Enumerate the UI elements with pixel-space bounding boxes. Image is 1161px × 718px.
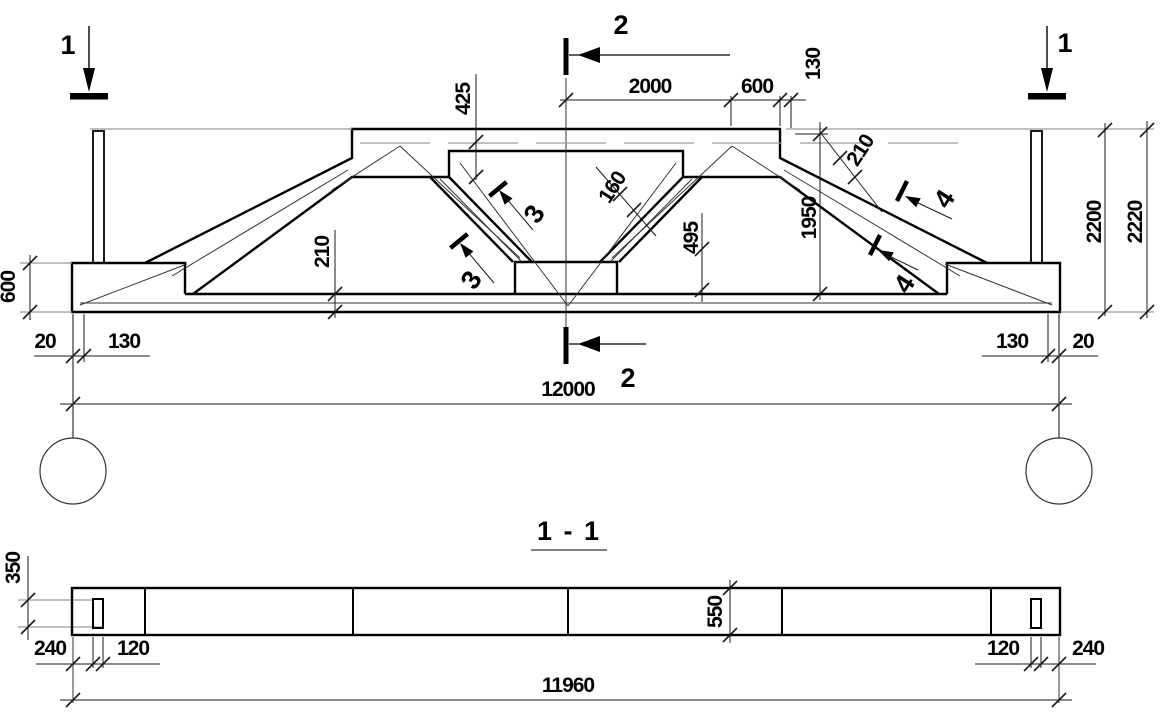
dim-130-top: 130 <box>802 48 825 80</box>
truss-drawing-canvas: 1 1 2 2 3 3 4 4 <box>0 0 1161 718</box>
dimension-texts-plan: 350 550 240 120 120 240 11960 <box>2 552 1104 697</box>
dim-2200: 2200 <box>1083 200 1106 243</box>
section-4-upper-arrow-icon <box>905 196 921 207</box>
section-marker-1-left: 1 <box>60 26 108 100</box>
section-view-title: 1 - 1 <box>537 516 601 546</box>
dim-240-left: 240 <box>34 637 66 660</box>
dimension-ticks-elevation <box>23 93 1154 411</box>
section-1-1-outline <box>72 588 1060 635</box>
grid-bubble-right <box>1026 438 1092 504</box>
section-marker-3-upper: 3 <box>490 182 551 230</box>
anchor-hole-left <box>93 599 103 628</box>
section-1-1-title-group: 1 - 1 <box>531 516 607 550</box>
section-1-left-arrow-icon <box>83 68 95 92</box>
dim-350: 350 <box>2 552 25 584</box>
dim-130-left: 130 <box>108 330 140 353</box>
dim-130-right: 130 <box>996 330 1028 353</box>
section-2-top-label: 2 <box>613 10 628 40</box>
section-marker-2-top: 2 <box>564 10 731 75</box>
section-1-left-label: 1 <box>60 30 75 60</box>
dim-425: 425 <box>452 82 475 115</box>
section-marker-1-right: 1 <box>1028 26 1073 100</box>
dim-2000: 2000 <box>629 75 672 98</box>
dim-120-right: 120 <box>987 637 1019 660</box>
dim-210-slope: 210 <box>842 130 879 170</box>
section-3-upper-label: 3 <box>518 199 551 228</box>
dim-550: 550 <box>704 596 727 628</box>
dim-12000: 12000 <box>541 378 595 401</box>
dim-240-right: 240 <box>1072 637 1104 660</box>
dimension-texts-elevation: 2000 600 130 425 160 495 1950 210 2200 2… <box>0 48 1147 401</box>
section-marker-4-lower: 4 <box>870 235 921 298</box>
dim-1950: 1950 <box>798 196 821 239</box>
section-1-right-label: 1 <box>1057 28 1072 58</box>
dim-11960: 11960 <box>542 674 595 697</box>
section-1-right-arrow-icon <box>1041 68 1053 92</box>
section-2-top-arrow-icon <box>578 47 600 63</box>
grid-bubble-left <box>40 438 106 504</box>
drawing-sheet: 1 1 2 2 3 3 4 4 <box>0 0 1161 718</box>
dim-600-left: 600 <box>0 271 20 303</box>
dim-120-left: 120 <box>117 637 149 660</box>
dimension-lines-elevation <box>30 74 1147 404</box>
dim-2220: 2220 <box>1124 200 1147 243</box>
section-marker-4-upper: 4 <box>897 181 961 219</box>
dim-600-top: 600 <box>741 75 773 98</box>
dim-20-right: 20 <box>1072 330 1094 353</box>
dim-20-left: 20 <box>34 330 56 353</box>
anchor-hole-right <box>1031 599 1041 628</box>
section-marker-3-lower: 3 <box>451 234 495 294</box>
dim-495: 495 <box>680 221 703 254</box>
section-2-bottom-label: 2 <box>620 363 635 393</box>
section-4-upper-label: 4 <box>928 184 961 213</box>
section-2-bottom-arrow-icon <box>578 336 600 352</box>
dim-210-bottom: 210 <box>311 236 334 268</box>
